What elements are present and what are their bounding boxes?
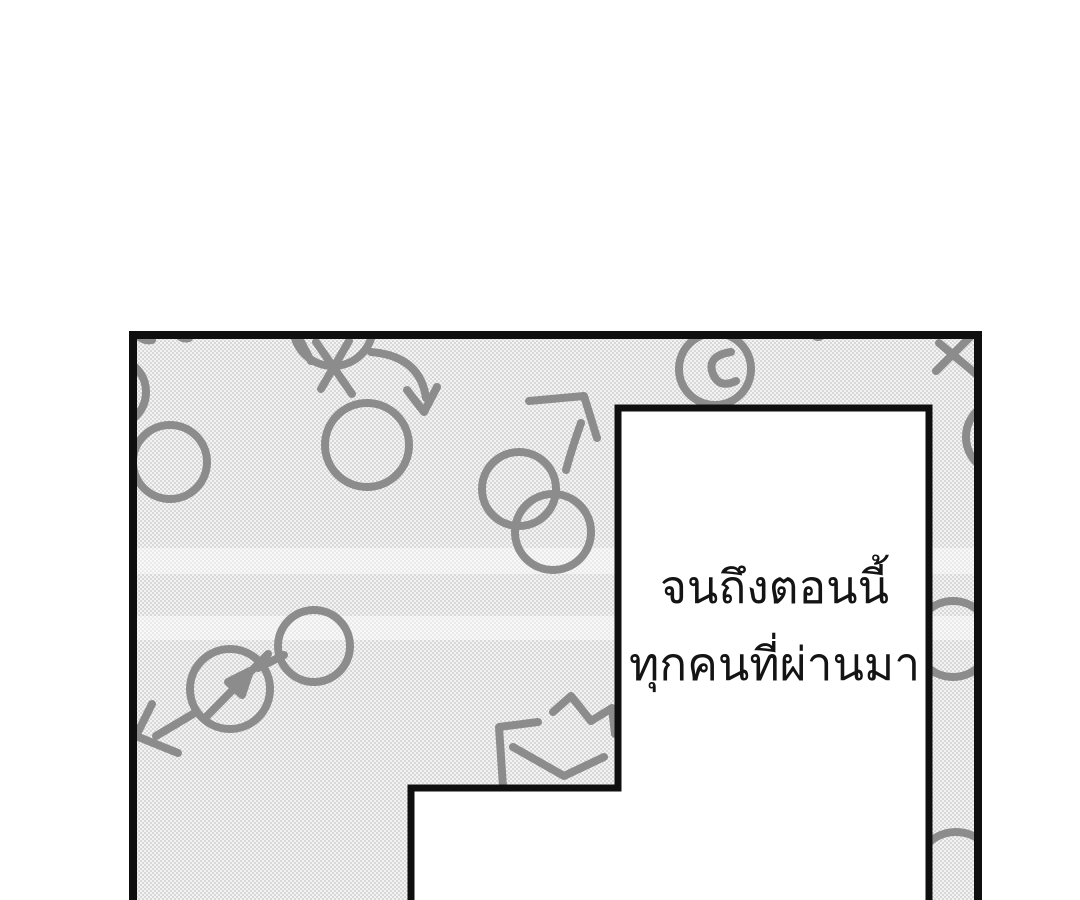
speech-line-2: ทุกคนที่ผ่านมา — [620, 626, 929, 703]
panel-artwork — [0, 0, 1080, 900]
comic-page: จนถึงตอนนี้ ทุกคนที่ผ่านมา — [0, 0, 1080, 900]
speech-line-1: จนถึงตอนนี้ — [620, 549, 929, 626]
speech-text: จนถึงตอนนี้ ทุกคนที่ผ่านมา — [620, 549, 929, 703]
